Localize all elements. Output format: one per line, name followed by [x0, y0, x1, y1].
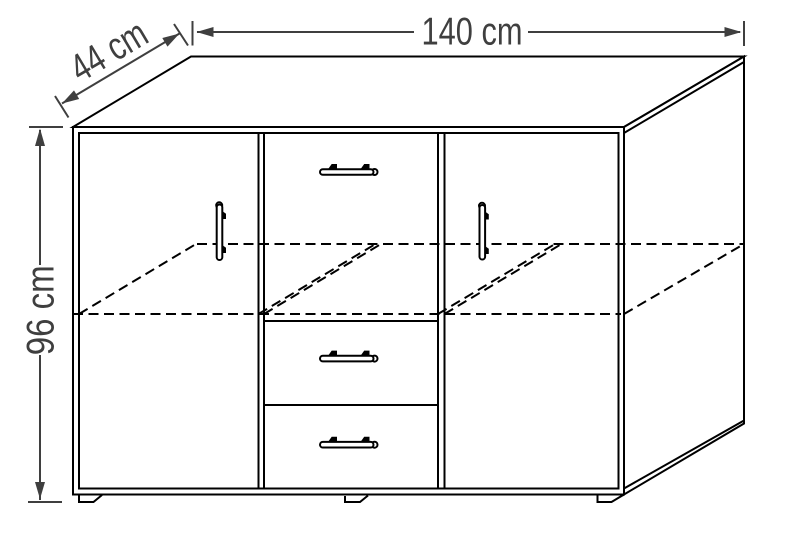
- svg-text:140 cm: 140 cm: [422, 11, 523, 54]
- svg-text:96 cm: 96 cm: [20, 265, 63, 355]
